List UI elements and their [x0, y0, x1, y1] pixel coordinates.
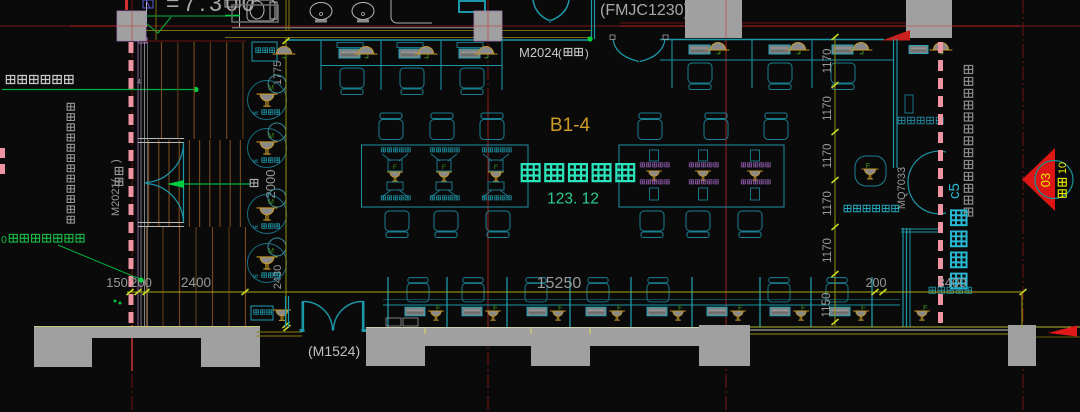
- svg-text:1170: 1170: [822, 49, 834, 74]
- svg-text:10: 10: [1057, 162, 1069, 174]
- svg-text:): ): [585, 48, 589, 60]
- svg-text:15250: 15250: [537, 275, 582, 292]
- svg-text:(FMJC1230): (FMJC1230): [600, 2, 689, 19]
- svg-text:F: F: [393, 164, 397, 171]
- svg-text:123. 12: 123. 12: [547, 191, 599, 208]
- svg-text:1170: 1170: [822, 96, 834, 121]
- svg-text:M2024: M2024: [519, 45, 559, 60]
- svg-text:1150: 1150: [821, 293, 833, 318]
- svg-text:F: F: [494, 164, 498, 171]
- svg-text:150: 150: [106, 275, 128, 290]
- svg-text:200: 200: [866, 276, 887, 290]
- svg-text:=7.300: =7.300: [166, 0, 258, 16]
- svg-text:MQ7033: MQ7033: [896, 167, 908, 209]
- svg-text:M: M: [268, 133, 274, 140]
- svg-text:0: 0: [1, 234, 7, 246]
- svg-text:F: F: [442, 164, 446, 171]
- svg-text:1170: 1170: [822, 144, 834, 169]
- svg-text:2400: 2400: [181, 275, 211, 290]
- svg-text:B1-4: B1-4: [550, 115, 591, 136]
- svg-text:3400: 3400: [938, 275, 967, 290]
- svg-text:vr: vr: [253, 158, 259, 165]
- svg-text:M2021(: M2021(: [110, 178, 122, 216]
- svg-text:M: M: [268, 199, 274, 206]
- svg-text:03: 03: [1038, 173, 1053, 187]
- svg-text:vr: vr: [253, 224, 259, 231]
- svg-text:1170: 1170: [822, 191, 834, 216]
- svg-text:1170: 1170: [822, 238, 834, 263]
- svg-text:M: M: [268, 85, 274, 92]
- svg-text:4: 4: [137, 79, 141, 86]
- svg-text:vr: vr: [253, 273, 259, 280]
- svg-text:c5: c5: [946, 183, 963, 199]
- svg-text:M: M: [268, 248, 274, 255]
- svg-text:): ): [110, 159, 122, 163]
- svg-text:(: (: [558, 48, 562, 60]
- svg-text:vr: vr: [253, 110, 259, 117]
- svg-text:(M1524): (M1524): [308, 343, 360, 359]
